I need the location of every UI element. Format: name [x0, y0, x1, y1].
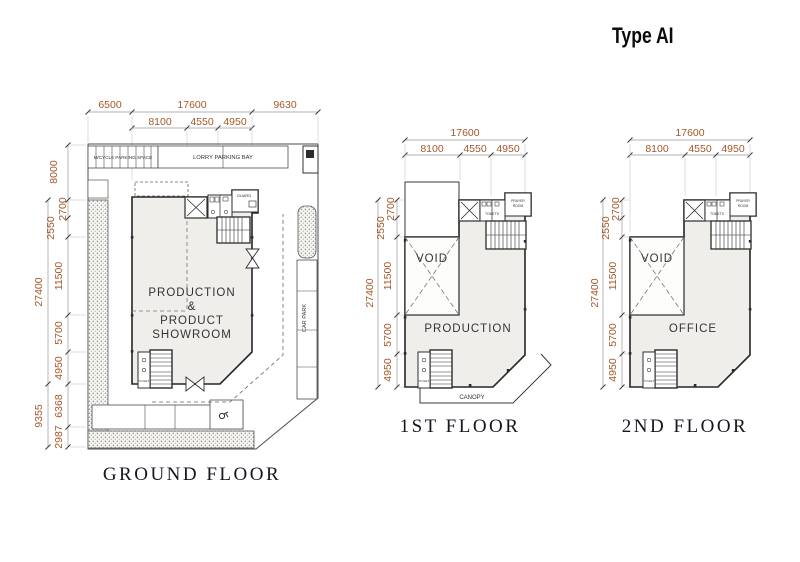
sf-dim-4950: 4950: [721, 143, 745, 155]
gf-room-line-4: SHOWROOM: [152, 329, 232, 341]
gf-guard-room: GUARD: [232, 190, 258, 212]
ff-main-stair: [486, 221, 526, 249]
ff-dim-4950: 4950: [496, 143, 520, 155]
floor-plan-page: Type AI 6500 17600 9630 8100 4550 4950 8…: [0, 0, 800, 562]
gf-lorry-parking: LORRY PARKING BAY: [158, 146, 288, 168]
ff-canopy-label: CANOPY: [459, 395, 484, 401]
sf-lift: [684, 200, 705, 221]
sf-prayer-line-1: PRAYER: [736, 199, 750, 203]
gf-dim-6368: 6368: [53, 394, 65, 418]
floor-plan-drawing: Type AI 6500 17600 9630 8100 4550 4950 8…: [0, 0, 800, 562]
sf-toilets-label: TOILETS: [710, 212, 725, 216]
gf-toilet-rooms: [208, 195, 232, 218]
gf-dim-9630: 9630: [273, 99, 297, 111]
sf-dim-4550: 4550: [688, 143, 712, 155]
sf-dim-27400: 27400: [589, 278, 601, 307]
gf-dim-9355: 9355: [33, 404, 45, 428]
gf-entrance-shed: [303, 146, 318, 173]
ff-room-label: PRODUCTION: [424, 323, 511, 335]
gf-landscape-strip-bottom: [88, 431, 254, 448]
ff-prayer-line-2: ROOM: [513, 204, 524, 208]
ff-left-witness-lines: [399, 200, 404, 387]
gf-carpark-label: CAR PARK: [302, 304, 308, 332]
ff-void-label: VOID: [416, 253, 448, 265]
ff-dim-17600: 17600: [450, 127, 479, 139]
gf-toilet-label: TOILET: [139, 379, 150, 383]
ff-prayer-room: PRAYER ROOM: [505, 193, 531, 216]
ff-void: VOID: [405, 237, 459, 315]
gf-carpark-strip: CAR PARK: [297, 206, 317, 399]
sf-main-stair: [711, 221, 751, 249]
sf-void: VOID: [630, 237, 684, 315]
sf-floor-label: 2ND FLOOR: [622, 416, 748, 437]
gf-mcycle-parking: M/CYCLE PARKING SPACE: [88, 146, 158, 168]
first-floor-plan: 17600 8100 4550 4950 27400 2700 2550 115…: [364, 127, 551, 437]
gf-carpark-planter: [298, 206, 316, 258]
sf-dim-11500: 11500: [607, 262, 619, 291]
ff-dim-27400: 27400: [364, 278, 376, 307]
ff-dim-2550: 2550: [375, 216, 387, 240]
gf-dim-5700: 5700: [53, 321, 65, 345]
sf-prayer-room: PRAYER ROOM: [730, 193, 756, 216]
ff-toilet-rooms: TOILETS: [480, 200, 505, 221]
ff-lorry-canopy-outline: [405, 182, 459, 237]
gf-rear-stair-block: TOILET: [138, 350, 172, 388]
ff-lift: [459, 200, 480, 221]
sf-void-label: VOID: [641, 253, 673, 265]
gf-dim-2987: 2987: [53, 425, 65, 449]
ff-dim-8100: 8100: [420, 143, 444, 155]
sf-toilet-label: TOILET: [644, 379, 655, 383]
gf-dim-17600: 17600: [177, 99, 206, 111]
gf-room-line-2: &: [188, 301, 197, 313]
ff-dim-4950: 4950: [382, 358, 394, 382]
gf-room-line-1: PRODUCTION: [148, 287, 235, 299]
gf-dim-2550: 2550: [45, 216, 57, 240]
gf-planter-box: [88, 180, 108, 198]
ff-toilets-label: TOILETS: [485, 212, 500, 216]
gf-lift: [185, 197, 207, 218]
gf-dim-8000: 8000: [48, 160, 60, 184]
ff-rear-stair-block: TOILET: [418, 350, 452, 388]
gf-landscape-strip-left: [88, 200, 108, 431]
gf-dim-11500: 11500: [53, 262, 65, 291]
gf-floor-label: GROUND FLOOR: [103, 464, 281, 485]
gf-dim-6500: 6500: [98, 99, 122, 111]
sf-rear-stair-block: TOILET: [643, 350, 677, 388]
sf-dim-5700: 5700: [607, 323, 619, 347]
sf-room-label: OFFICE: [669, 323, 717, 335]
gf-dim-4550: 4550: [190, 116, 214, 128]
ff-dim-4550: 4550: [463, 143, 487, 155]
sf-prayer-line-2: ROOM: [738, 204, 749, 208]
ff-dim-5700: 5700: [382, 323, 394, 347]
gf-guard-label: GUARD: [237, 193, 252, 198]
gf-bottom-stalls: [92, 400, 243, 429]
type-label: Type AI: [612, 24, 674, 48]
sf-left-witness-lines: [624, 200, 629, 387]
ff-floor-label: 1ST FLOOR: [400, 416, 521, 437]
sf-dim-2550: 2550: [600, 216, 612, 240]
gf-dim-27400: 27400: [33, 277, 45, 306]
ff-toilet-label: TOILET: [419, 379, 430, 383]
sf-toilet-rooms: TOILETS: [705, 200, 730, 221]
gf-entrance-canopy-dashed: [135, 182, 188, 196]
ground-floor-plan: 6500 17600 9630 8100 4550 4950 8000 2740…: [33, 99, 321, 485]
gf-dim-2700: 2700: [57, 197, 69, 221]
gf-mcycle-label: M/CYCLE PARKING SPACE: [94, 155, 153, 160]
gf-lorry-label: LORRY PARKING BAY: [193, 155, 253, 161]
gf-dim-8100: 8100: [148, 116, 172, 128]
gf-dim-4950: 4950: [223, 116, 247, 128]
gf-shed-icon: [306, 150, 314, 158]
gf-main-stair: [217, 217, 250, 243]
sf-dim-17600: 17600: [675, 127, 704, 139]
sf-dim-8100: 8100: [645, 143, 669, 155]
ff-prayer-line-1: PRAYER: [511, 199, 525, 203]
ff-dim-11500: 11500: [382, 262, 394, 291]
gf-room-line-3: PRODUCT: [160, 315, 224, 327]
second-floor-plan: 17600 8100 4550 4950 27400 2700 2550 115…: [589, 127, 756, 437]
gf-left-witness-lines: [70, 145, 86, 447]
gf-dim-4950: 4950: [53, 356, 65, 380]
sf-dim-4950: 4950: [607, 358, 619, 382]
